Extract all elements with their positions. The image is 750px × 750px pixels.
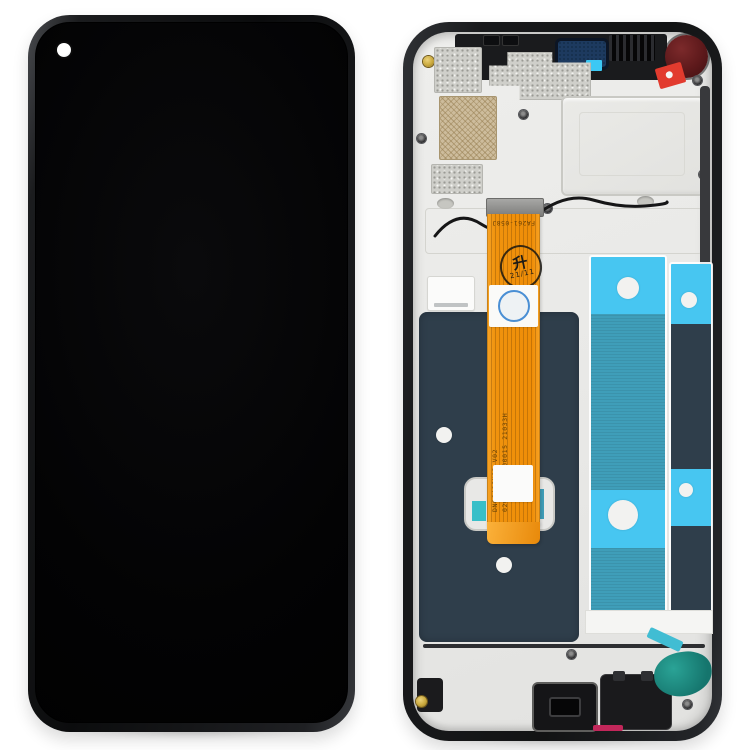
frame-side-wall bbox=[700, 86, 710, 284]
sensor-cutout bbox=[483, 35, 500, 46]
emi-mesh-patch bbox=[434, 47, 482, 93]
lcd-screen-glass bbox=[35, 22, 348, 723]
adhesive-section-navy bbox=[671, 324, 711, 469]
adhesive-strip bbox=[669, 262, 713, 621]
product-photo-phone-lcd-assembly: FA261-058J 升 21/11 DN0649JN03 V02 0203-0… bbox=[0, 0, 750, 750]
adhesive-section-navy bbox=[671, 526, 711, 619]
release-hole bbox=[679, 483, 693, 497]
coaxial-antenna-wire bbox=[429, 188, 673, 254]
usb-port-housing bbox=[532, 682, 598, 732]
release-hole bbox=[681, 292, 697, 308]
adhesive-section-cyan bbox=[671, 469, 711, 526]
release-hole bbox=[608, 500, 638, 530]
module-notch bbox=[613, 671, 625, 681]
sensor-cutout bbox=[502, 35, 519, 46]
gold-screw bbox=[423, 56, 434, 67]
adhesive-fragment bbox=[472, 501, 486, 521]
label-print bbox=[434, 303, 468, 307]
copper-mesh-patch bbox=[439, 96, 497, 160]
punch-hole-camera bbox=[57, 43, 71, 57]
release-hole bbox=[617, 277, 639, 299]
flex-square-label bbox=[493, 465, 533, 502]
phone-front-view bbox=[28, 15, 355, 732]
blue-circle-mark bbox=[498, 290, 530, 322]
gold-screw bbox=[416, 696, 427, 707]
pink-seal-strip bbox=[593, 725, 623, 731]
screw bbox=[417, 134, 426, 143]
screw bbox=[693, 76, 702, 85]
flex-cable-fold bbox=[487, 522, 540, 544]
phone-back-view-frame: FA261-058J 升 21/11 DN0649JN03 V02 0203-0… bbox=[403, 22, 722, 741]
release-hole bbox=[436, 427, 452, 443]
screw bbox=[567, 650, 576, 659]
speaker-grille bbox=[609, 35, 655, 61]
adhesive-section-teal bbox=[591, 314, 665, 490]
flex-part-number: FA261-058J bbox=[487, 219, 540, 227]
white-part-label bbox=[427, 276, 475, 311]
embossed-groove bbox=[579, 112, 685, 176]
usb-connector-slot bbox=[549, 697, 581, 717]
release-hole bbox=[496, 557, 512, 573]
adhesive-strip bbox=[589, 255, 667, 626]
screw bbox=[519, 110, 528, 119]
flex-round-label bbox=[489, 285, 538, 327]
screw bbox=[683, 700, 692, 709]
module-notch bbox=[641, 671, 653, 681]
